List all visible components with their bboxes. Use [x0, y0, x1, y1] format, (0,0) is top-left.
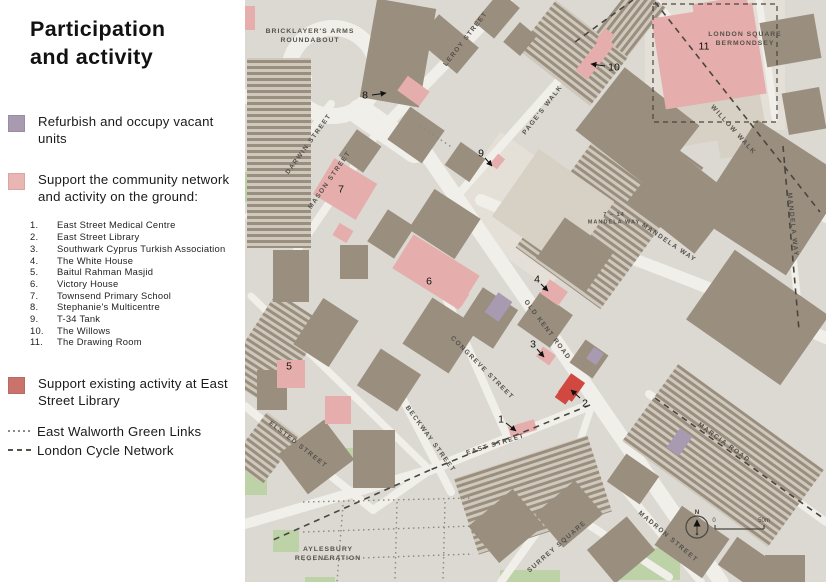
refurbish-swatch: [8, 115, 25, 132]
map-marker: 6: [426, 276, 432, 288]
community-list-item: 9.T-34 Tank: [30, 313, 245, 325]
community-list-item: 1.East Street Medical Centre: [30, 219, 245, 231]
refurbish-label: Refurbish and occupy vacant units: [38, 114, 239, 148]
green-space: [305, 577, 335, 582]
community-list-item: 8.Stephanie's Multicentre: [30, 301, 245, 313]
map-marker: 9: [478, 148, 484, 160]
map-marker: 11: [699, 41, 710, 53]
community-list-item: 5.Baitul Rahman Masjid: [30, 266, 245, 278]
map: LEROY STREETPAGE'S WALKWILLOW WALKDARWIN…: [245, 0, 826, 582]
green-space: [273, 530, 299, 552]
map-marker: 5: [286, 361, 292, 373]
dotted-line-sample: [8, 430, 31, 432]
building: [353, 430, 395, 488]
legend-item-cycle-network: London Cycle Network: [8, 443, 245, 458]
community-list-item: 3.Southwark Cyprus Turkish Association: [30, 243, 245, 255]
community-building: [651, 3, 766, 110]
community-list-item: 4.The White House: [30, 255, 245, 267]
compass-base-dot: [696, 533, 699, 536]
community-list-item: 7.Townsend Primary School: [30, 290, 245, 302]
community-list-item: 11.The Drawing Room: [30, 336, 245, 348]
legend-panel: Participation and activity Refurbish and…: [0, 0, 245, 582]
legend-item-green-links: East Walworth Green Links: [8, 424, 245, 439]
building: [782, 87, 826, 135]
map-marker: 1: [498, 414, 504, 426]
area-label: LONDON SQUAREBERMONDSEY: [708, 31, 781, 47]
community-building: [245, 6, 255, 30]
page-title: Participation and activity: [30, 16, 200, 72]
building: [340, 245, 368, 279]
map-marker: 2: [582, 398, 588, 410]
scale-distance-label: 50m: [758, 518, 770, 524]
dashed-line-sample: [8, 449, 31, 451]
community-label: Support the community network and activi…: [38, 172, 239, 206]
map-marker: 4: [534, 274, 540, 286]
community-list-item: 2.East Street Library: [30, 231, 245, 243]
existing-swatch: [8, 377, 25, 394]
map-marker: 7: [338, 184, 344, 196]
map-marker: 3: [530, 339, 536, 351]
community-swatch: [8, 173, 25, 190]
compass-north-label: N: [695, 509, 700, 516]
community-building: [325, 396, 351, 424]
legend-item-existing: Support existing activity at East Street…: [8, 376, 239, 410]
cycle-network-label: London Cycle Network: [37, 443, 174, 458]
building: [765, 555, 805, 582]
community-list: 1.East Street Medical Centre2.East Stree…: [0, 219, 245, 348]
existing-label: Support existing activity at East Street…: [38, 376, 239, 410]
green-links-label: East Walworth Green Links: [37, 424, 201, 439]
community-list-item: 10.The Willows: [30, 325, 245, 337]
legend-item-community: Support the community network and activi…: [8, 172, 239, 206]
area-label: AYLESBURYREGENERATION: [295, 546, 361, 562]
community-list-item: 6.Victory House: [30, 278, 245, 290]
building: [273, 250, 309, 302]
map-marker: 8: [362, 90, 368, 102]
map-marker: 10: [608, 62, 620, 74]
legend-item-refurbish: Refurbish and occupy vacant units: [8, 114, 239, 148]
